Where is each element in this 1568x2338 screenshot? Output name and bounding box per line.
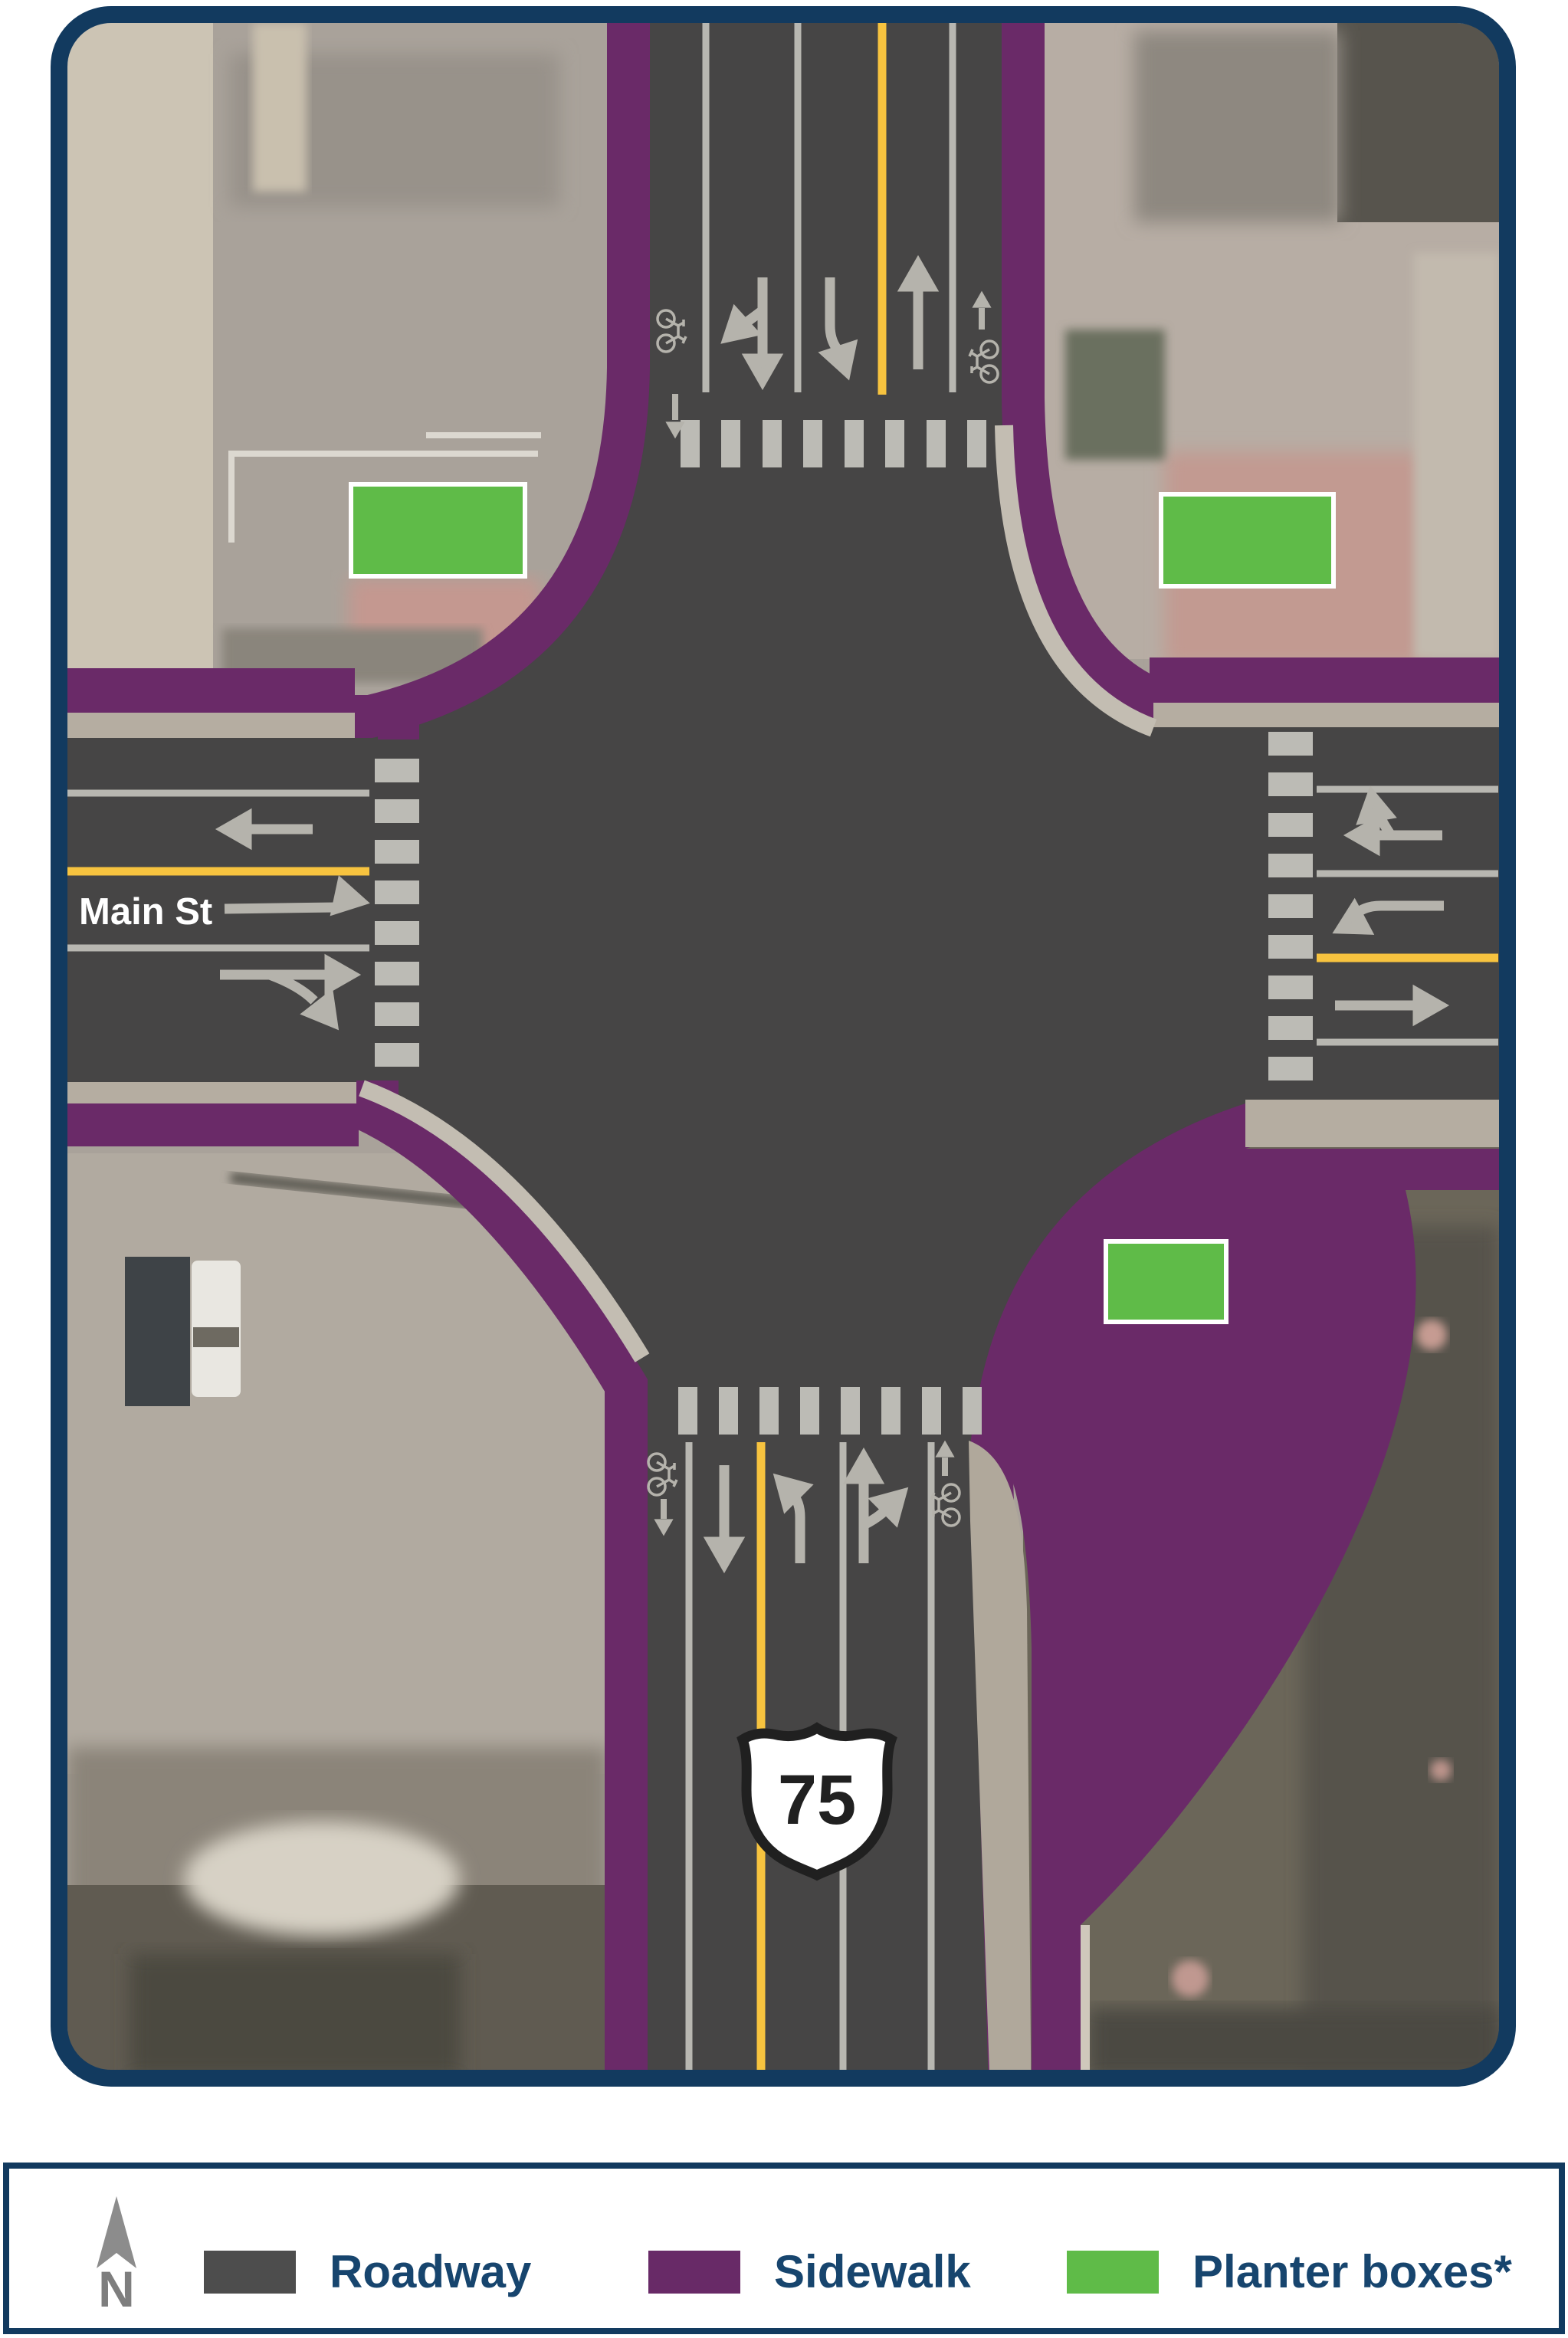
- sidewalk-swatch: [648, 2251, 740, 2294]
- sidewalk-band: [67, 1103, 359, 1146]
- aerial-patch: [1416, 1320, 1447, 1350]
- sidewalk-ramp: [378, 694, 419, 739]
- legend: N Roadway Sidewalk Planter boxes*: [3, 2163, 1565, 2334]
- planter-box: [1106, 1241, 1226, 1322]
- planter-box: [351, 484, 525, 576]
- curb-strip: [67, 1082, 359, 1103]
- aerial-patch: [1337, 23, 1499, 222]
- aerial-patch: [231, 451, 538, 457]
- north-arrow-icon: [92, 2196, 141, 2270]
- aerial-patch: [1088, 2008, 1499, 2078]
- curb-strip: [67, 713, 355, 738]
- north-label: N: [86, 2264, 147, 2314]
- aerial-patch: [130, 1954, 460, 2077]
- roadway-swatch: [204, 2251, 296, 2294]
- aerial-patch: [67, 23, 213, 743]
- aerial-patch: [1134, 31, 1341, 222]
- aerial-patch: [193, 1327, 239, 1347]
- legend-label: Roadway: [330, 2245, 531, 2298]
- intersection-map: Main St 75: [0, 0, 1568, 2130]
- aerial-patch: [426, 432, 541, 438]
- legend-item-roadway: Roadway: [204, 2245, 531, 2298]
- planter-box: [1161, 494, 1333, 586]
- aerial-patch: [1414, 253, 1499, 659]
- legend-item-sidewalk: Sidewalk: [648, 2245, 971, 2298]
- crosswalk-east: [1268, 732, 1313, 1080]
- route-number: 75: [778, 1761, 856, 1839]
- legend-label: Sidewalk: [774, 2245, 971, 2298]
- aerial-patch: [184, 1822, 460, 1936]
- aerial-patch: [1065, 330, 1165, 460]
- aerial-patch: [253, 23, 307, 192]
- aerial-patch: [228, 451, 235, 543]
- street-name-label: Main St: [79, 891, 212, 933]
- aerial-patch: [1430, 1759, 1452, 1781]
- legend-label: Planter boxes*: [1192, 2245, 1512, 2298]
- curb-strip: [1081, 1925, 1090, 2130]
- aerial-patch: [125, 1257, 190, 1406]
- legend-item-planter-boxes: Planter boxes*: [1067, 2245, 1512, 2298]
- planter-swatch: [1067, 2251, 1159, 2294]
- curb-strip: [1245, 1100, 1568, 1147]
- sidewalk-band: [67, 668, 355, 713]
- aerial-patch: [1172, 1960, 1209, 1997]
- page: Main St 75 N Roadway Sidewalk Planter: [0, 0, 1568, 2338]
- north-indicator: N: [86, 2196, 147, 2314]
